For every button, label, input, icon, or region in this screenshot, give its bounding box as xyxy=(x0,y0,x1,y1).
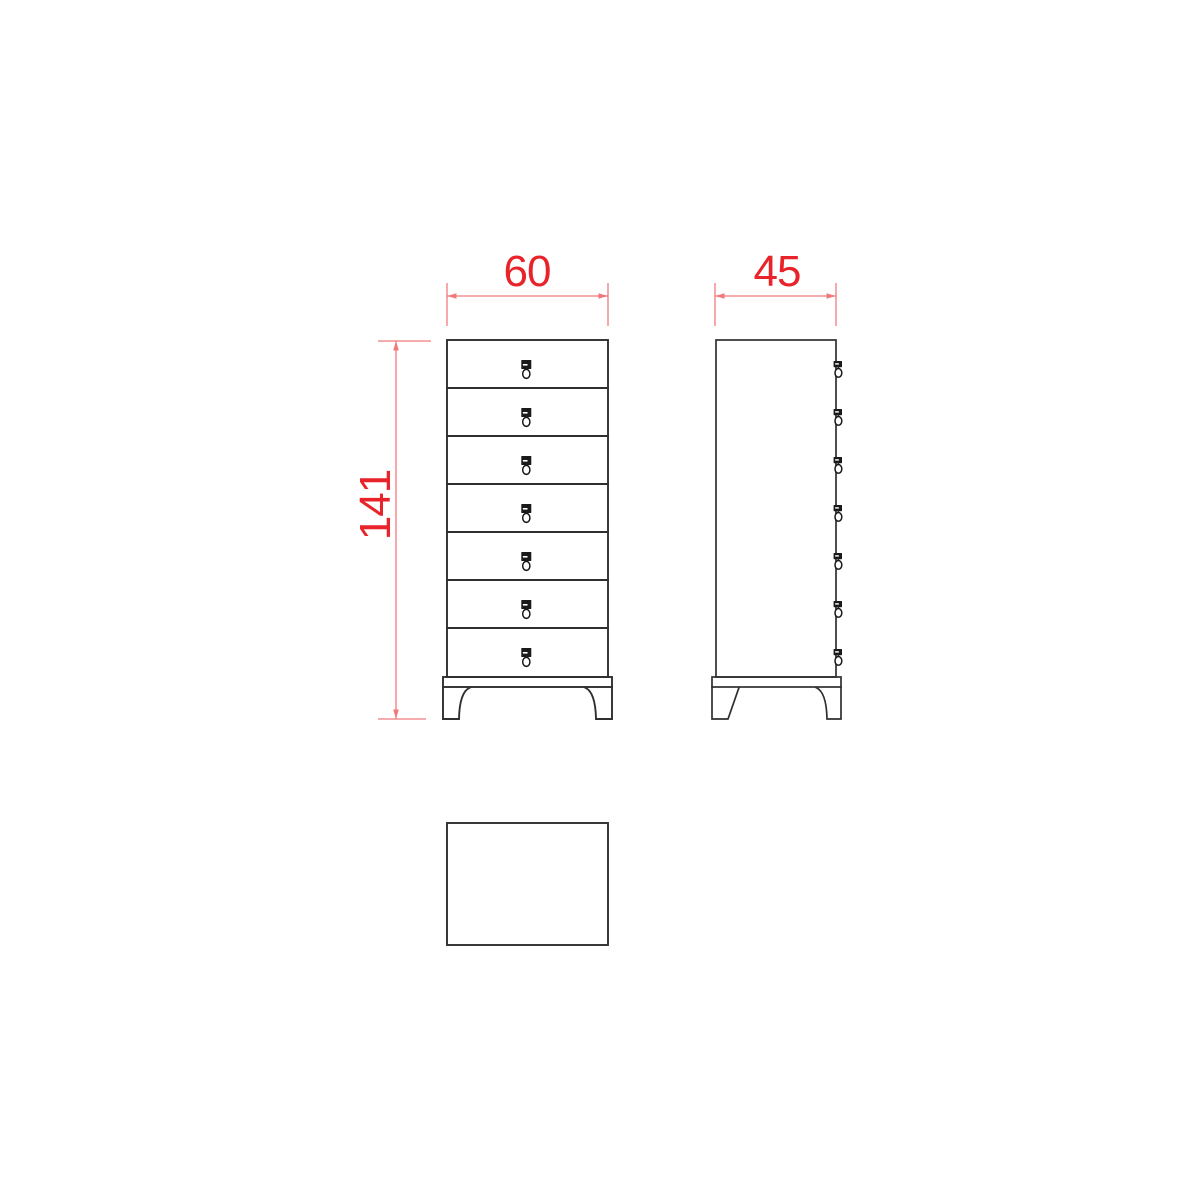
drawer-handle-side-icon xyxy=(834,409,842,425)
front-right-leg xyxy=(585,687,612,719)
arrow-right-icon xyxy=(599,293,609,299)
front-base-band xyxy=(443,677,612,687)
side-front-leg xyxy=(816,687,841,719)
side-view xyxy=(712,340,842,719)
arrow-up-icon xyxy=(393,341,399,351)
arrow-left-icon xyxy=(447,293,457,299)
dimension-depth-value: 45 xyxy=(754,247,801,296)
side-body-outline xyxy=(716,340,836,677)
dimension-height-value: 141 xyxy=(351,470,400,540)
depth-dimension: 45 xyxy=(715,247,836,326)
drawer-handle-icon xyxy=(521,552,531,570)
drawer-handle-side-icon xyxy=(834,601,842,617)
plan-view xyxy=(447,823,608,945)
height-dimension: 141 xyxy=(351,341,431,719)
drawer-handle-side-icon xyxy=(834,505,842,521)
drawer-handle-side-icon xyxy=(834,361,842,377)
side-base-band xyxy=(712,677,841,687)
drawer-handle-side-icon xyxy=(834,649,842,665)
drawer-handle-icon xyxy=(521,600,531,618)
arrow-down-icon xyxy=(393,710,399,720)
side-back-leg xyxy=(712,687,739,719)
dimension-width-value: 60 xyxy=(504,247,551,296)
drawer-handle-icon xyxy=(521,648,531,666)
plan-outline xyxy=(447,823,608,945)
arrow-right-icon xyxy=(827,293,837,299)
width-dimension: 60 xyxy=(447,247,608,326)
front-view xyxy=(443,340,612,719)
drawer-handle-side-icon xyxy=(834,457,842,473)
arrow-left-icon xyxy=(715,293,725,299)
drawer-handle-icon xyxy=(521,408,531,426)
drawer-handle-side-icon xyxy=(834,553,842,569)
drawer-handle-icon xyxy=(521,360,531,378)
drawer-handle-icon xyxy=(521,504,531,522)
drawer-handle-icon xyxy=(521,456,531,474)
front-left-leg xyxy=(443,687,470,719)
furniture-technical-drawing: 60 45 141 xyxy=(0,0,1200,1200)
drawing-canvas: 60 45 141 xyxy=(0,0,1200,1200)
